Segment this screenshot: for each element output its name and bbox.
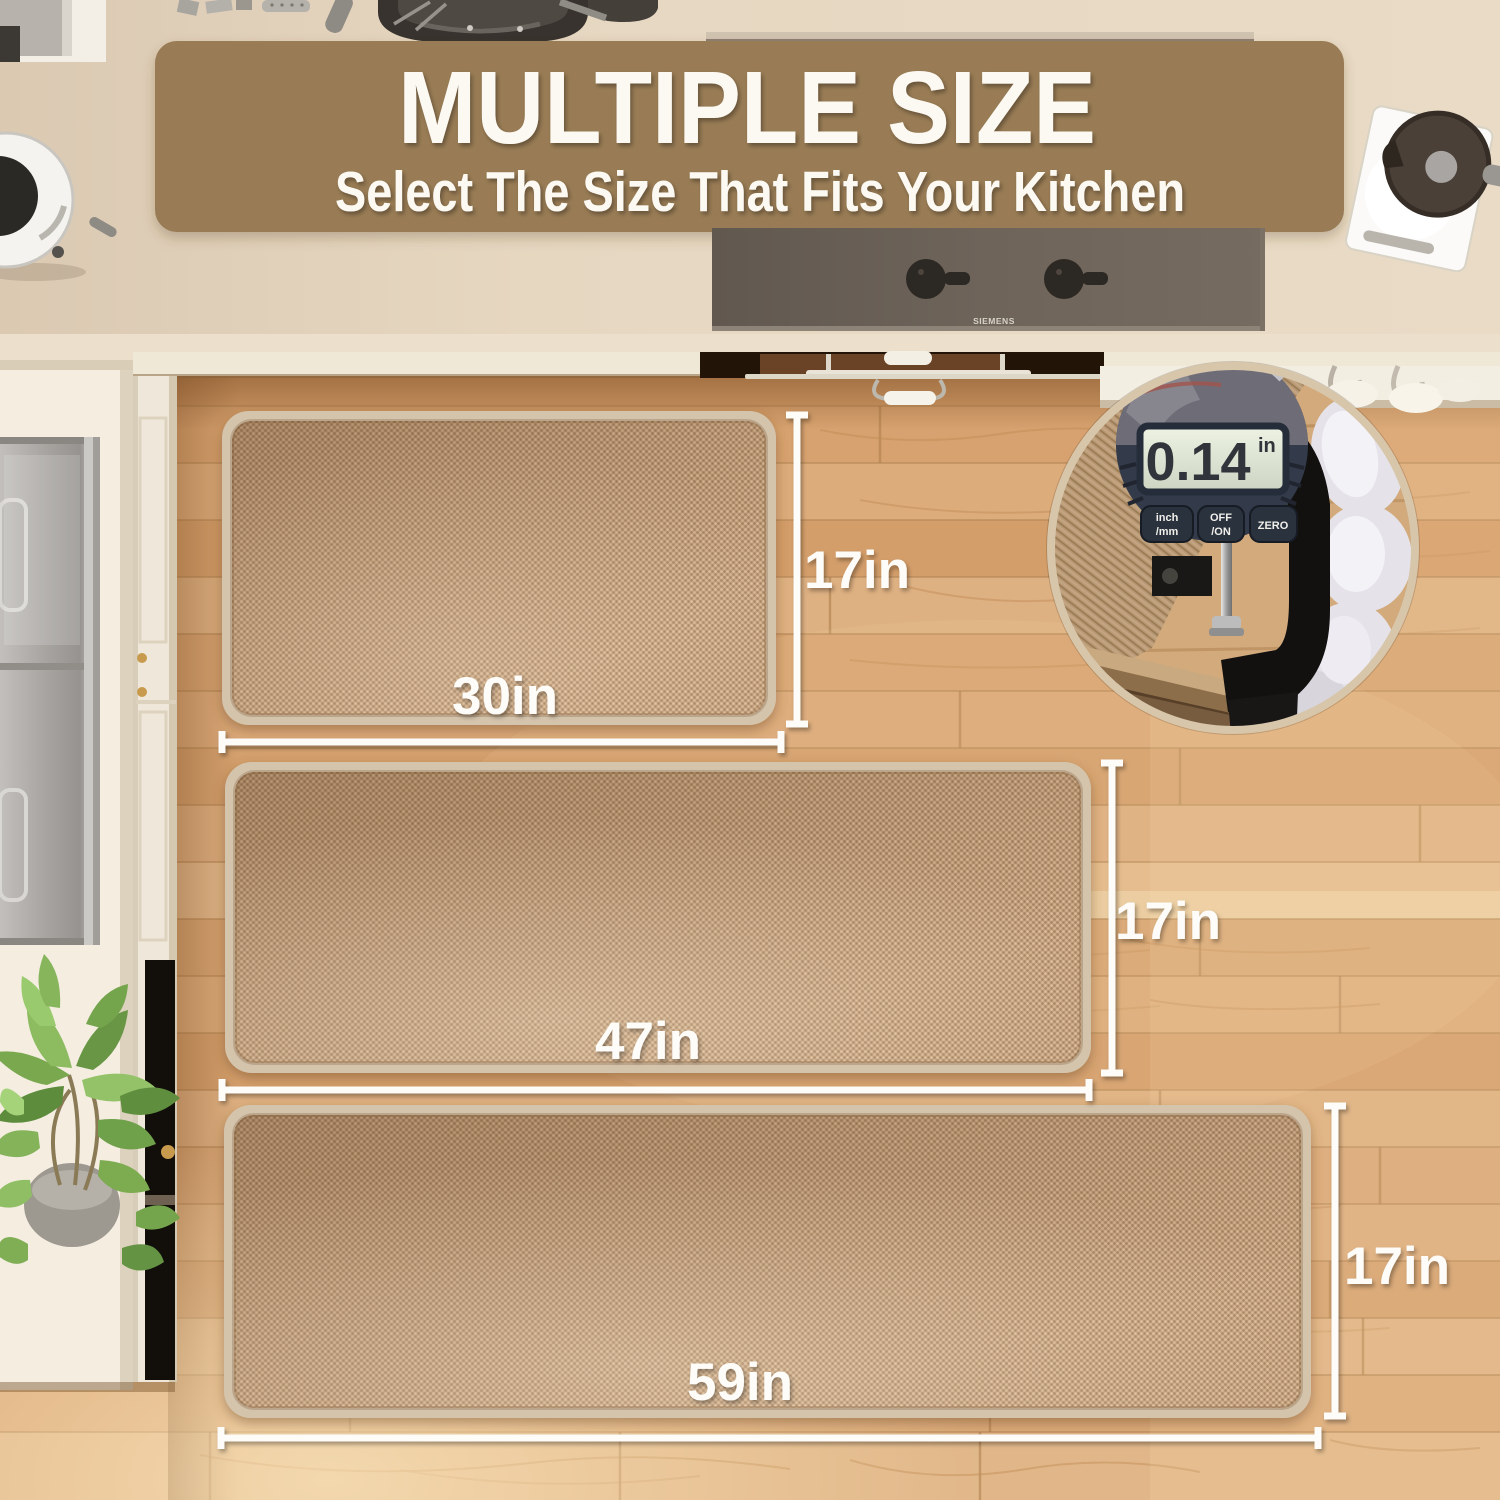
svg-text:Select The Size That Fits Your: Select The Size That Fits Your Kitchen	[335, 160, 1185, 224]
svg-text:17in: 17in	[1115, 892, 1221, 951]
svg-text:/ON: /ON	[1211, 526, 1231, 538]
svg-text:MULTIPLE SIZE: MULTIPLE SIZE	[398, 50, 1096, 165]
svg-text:SIEMENS: SIEMENS	[973, 316, 1015, 326]
svg-text:17in: 17in	[804, 541, 910, 600]
svg-text:17in: 17in	[1344, 1237, 1450, 1296]
svg-text:30in: 30in	[452, 667, 558, 726]
svg-text:0.14: 0.14	[1145, 432, 1250, 492]
svg-text:47in: 47in	[595, 1012, 701, 1071]
svg-text:59in: 59in	[687, 1353, 793, 1412]
svg-text:/mm: /mm	[1156, 526, 1179, 538]
svg-text:inch: inch	[1156, 512, 1179, 524]
svg-text:ZERO: ZERO	[1258, 520, 1289, 532]
svg-text:in: in	[1258, 435, 1276, 457]
svg-text:OFF: OFF	[1210, 512, 1232, 524]
